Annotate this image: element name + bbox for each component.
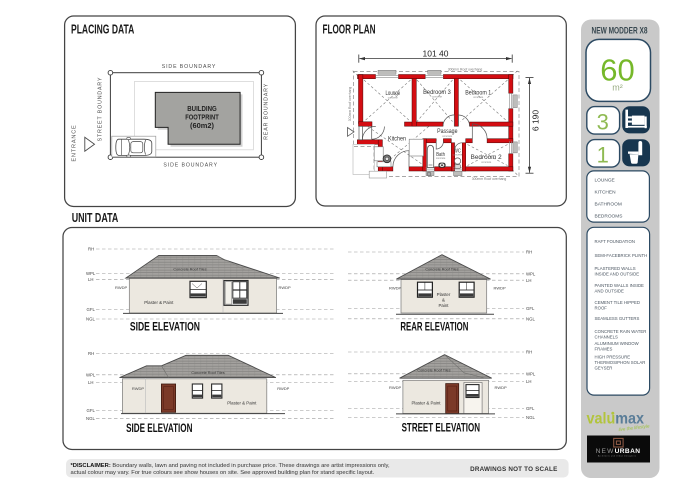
svg-text:GFL: GFL bbox=[87, 307, 96, 312]
svg-text:SIDE BOUNDARY: SIDE BOUNDARY bbox=[163, 163, 218, 169]
svg-text:1: 1 bbox=[597, 143, 609, 168]
svg-text:Concrete Roof Tiles: Concrete Roof Tiles bbox=[173, 267, 206, 271]
svg-text:WPL: WPL bbox=[86, 271, 96, 276]
svg-text:RWDP: RWDP bbox=[132, 386, 144, 391]
svg-text:LH: LH bbox=[88, 380, 94, 385]
svg-text:SIDE ELEVATION: SIDE ELEVATION bbox=[130, 322, 200, 334]
svg-text:concrete: concrete bbox=[432, 95, 443, 99]
svg-text:LH: LH bbox=[526, 379, 532, 384]
svg-text:CONCRETE RAIN WATER: CONCRETE RAIN WATER bbox=[595, 329, 647, 334]
svg-text:RH: RH bbox=[526, 350, 532, 355]
svg-text:concrete: concrete bbox=[473, 95, 484, 99]
svg-text:FLOOR PLAN: FLOOR PLAN bbox=[323, 22, 376, 37]
svg-text:THERMOSIPHON SOLAR: THERMOSIPHON SOLAR bbox=[595, 360, 646, 365]
svg-text:RWDP: RWDP bbox=[495, 385, 507, 390]
svg-text:Concrete Roof Tiles: Concrete Roof Tiles bbox=[191, 371, 224, 375]
svg-text:INSIDE AND OUTSIDE: INSIDE AND OUTSIDE bbox=[595, 272, 640, 277]
svg-text:Concrete Roof Tiles: Concrete Roof Tiles bbox=[417, 369, 450, 373]
svg-text:300mm Roof overhang: 300mm Roof overhang bbox=[448, 68, 483, 72]
svg-text:NEWURBAN: NEWURBAN bbox=[596, 448, 641, 455]
svg-text:HIGH PRESSURE: HIGH PRESSURE bbox=[595, 354, 631, 359]
svg-text:concrete: concrete bbox=[436, 156, 446, 160]
svg-text:BATHROOM: BATHROOM bbox=[595, 201, 622, 207]
svg-text:RWDP: RWDP bbox=[279, 285, 291, 290]
svg-text:actual colour may vary. For tr: actual colour may vary. For true colours… bbox=[71, 470, 375, 476]
svg-text:300mm Roof overhang: 300mm Roof overhang bbox=[472, 177, 507, 181]
svg-text:Plaster & Paint: Plaster & Paint bbox=[411, 401, 441, 406]
svg-text:3: 3 bbox=[597, 110, 609, 135]
svg-text:RH: RH bbox=[526, 250, 532, 255]
svg-text:NGL: NGL bbox=[86, 416, 95, 421]
svg-text:&: & bbox=[442, 298, 445, 303]
svg-text:PLACING DATA: PLACING DATA bbox=[71, 22, 135, 37]
svg-text:BUILDING: BUILDING bbox=[187, 106, 217, 113]
svg-text:WPL: WPL bbox=[86, 372, 96, 377]
svg-text:concrete: concrete bbox=[442, 134, 453, 138]
svg-text:Plaster & Paint: Plaster & Paint bbox=[227, 400, 257, 405]
svg-text:Architects and Urban Designers: Architects and Urban Designers bbox=[598, 455, 636, 458]
svg-text:101 40: 101 40 bbox=[423, 48, 449, 58]
svg-text:Concrete Roof Tiles: Concrete Roof Tiles bbox=[425, 268, 458, 272]
svg-text:PLASTERED WALLS: PLASTERED WALLS bbox=[595, 266, 636, 271]
svg-text:FOOTPRINT: FOOTPRINT bbox=[185, 114, 219, 121]
svg-text:DRAWINGS NOT TO SCALE: DRAWINGS NOT TO SCALE bbox=[470, 466, 557, 473]
svg-text:300mm Roof overhang: 300mm Roof overhang bbox=[348, 87, 352, 122]
svg-text:STREET BOUNDARY: STREET BOUNDARY bbox=[98, 77, 104, 142]
svg-text:Paint: Paint bbox=[438, 303, 449, 308]
svg-text:REAR BOUNDARY: REAR BOUNDARY bbox=[264, 83, 270, 140]
svg-text:GFL: GFL bbox=[526, 306, 535, 311]
svg-text:concrete: concrete bbox=[453, 153, 463, 157]
svg-text:SIDE ELEVATION: SIDE ELEVATION bbox=[126, 423, 192, 435]
svg-text:FRAMES: FRAMES bbox=[595, 347, 613, 352]
svg-text:GFL: GFL bbox=[526, 406, 535, 411]
svg-text:Plaster: Plaster bbox=[437, 292, 451, 297]
svg-text:RH: RH bbox=[88, 247, 94, 252]
svg-text:REAR ELEVATION: REAR ELEVATION bbox=[400, 322, 468, 334]
svg-text:AND OUTSIDE: AND OUTSIDE bbox=[595, 289, 624, 294]
svg-text:GFL: GFL bbox=[87, 408, 96, 413]
svg-text:SEMI-FACEBRICK PLINTH: SEMI-FACEBRICK PLINTH bbox=[595, 253, 648, 258]
svg-text:STREET ELEVATION: STREET ELEVATION bbox=[402, 423, 480, 435]
svg-text:LH: LH bbox=[526, 278, 532, 283]
svg-text:LH: LH bbox=[88, 277, 94, 282]
svg-text:RWDP: RWDP bbox=[277, 386, 289, 391]
svg-text:6 190: 6 190 bbox=[531, 110, 541, 132]
svg-text:Kitchen: Kitchen bbox=[388, 137, 406, 143]
svg-text:WPL: WPL bbox=[526, 271, 536, 276]
svg-text:NGL: NGL bbox=[86, 317, 95, 322]
svg-text:(60m2): (60m2) bbox=[190, 123, 214, 130]
svg-text:KITCHEN: KITCHEN bbox=[595, 189, 617, 195]
svg-text:WPL: WPL bbox=[526, 371, 536, 376]
svg-text:NGL: NGL bbox=[526, 316, 535, 321]
svg-text:RAFT FOUNDATION: RAFT FOUNDATION bbox=[595, 239, 635, 244]
svg-text:RWDP: RWDP bbox=[389, 286, 401, 291]
svg-text:RH: RH bbox=[88, 351, 94, 356]
svg-text:Plaster & Paint: Plaster & Paint bbox=[144, 300, 174, 305]
svg-text:GEYSER: GEYSER bbox=[595, 366, 613, 371]
svg-text:BEDROOMS: BEDROOMS bbox=[595, 213, 623, 219]
svg-text:concrete: concrete bbox=[388, 95, 399, 99]
svg-text:SEAMLESS GUTTERS: SEAMLESS GUTTERS bbox=[595, 316, 640, 321]
svg-text:NEW MODDER X8: NEW MODDER X8 bbox=[592, 25, 648, 35]
svg-text:ENTRANCE: ENTRANCE bbox=[72, 124, 78, 161]
svg-text:RWDP: RWDP bbox=[494, 286, 506, 291]
svg-text:CEMENT TILE HIPPED: CEMENT TILE HIPPED bbox=[595, 300, 640, 305]
svg-text:m²: m² bbox=[612, 83, 623, 93]
svg-text:PAINTED WALLS INSIDE: PAINTED WALLS INSIDE bbox=[595, 283, 645, 288]
svg-text:SIDE BOUNDARY: SIDE BOUNDARY bbox=[162, 64, 217, 70]
svg-text:ALUMINIUM WINDOW: ALUMINIUM WINDOW bbox=[595, 341, 640, 346]
svg-text:RWDP: RWDP bbox=[115, 285, 127, 290]
svg-text:NGL: NGL bbox=[526, 415, 535, 420]
svg-text:LOUNGE: LOUNGE bbox=[595, 177, 615, 183]
svg-text:CHANNELS: CHANNELS bbox=[595, 335, 619, 340]
svg-text:ROOF: ROOF bbox=[595, 306, 608, 311]
svg-text:*DISCLAIMER: Boundary walls, l: *DISCLAIMER: Boundary walls, lawn and pa… bbox=[71, 463, 390, 469]
svg-text:UNIT DATA: UNIT DATA bbox=[72, 210, 119, 225]
svg-text:RWDP: RWDP bbox=[389, 385, 401, 390]
svg-text:concrete: concrete bbox=[481, 160, 492, 164]
